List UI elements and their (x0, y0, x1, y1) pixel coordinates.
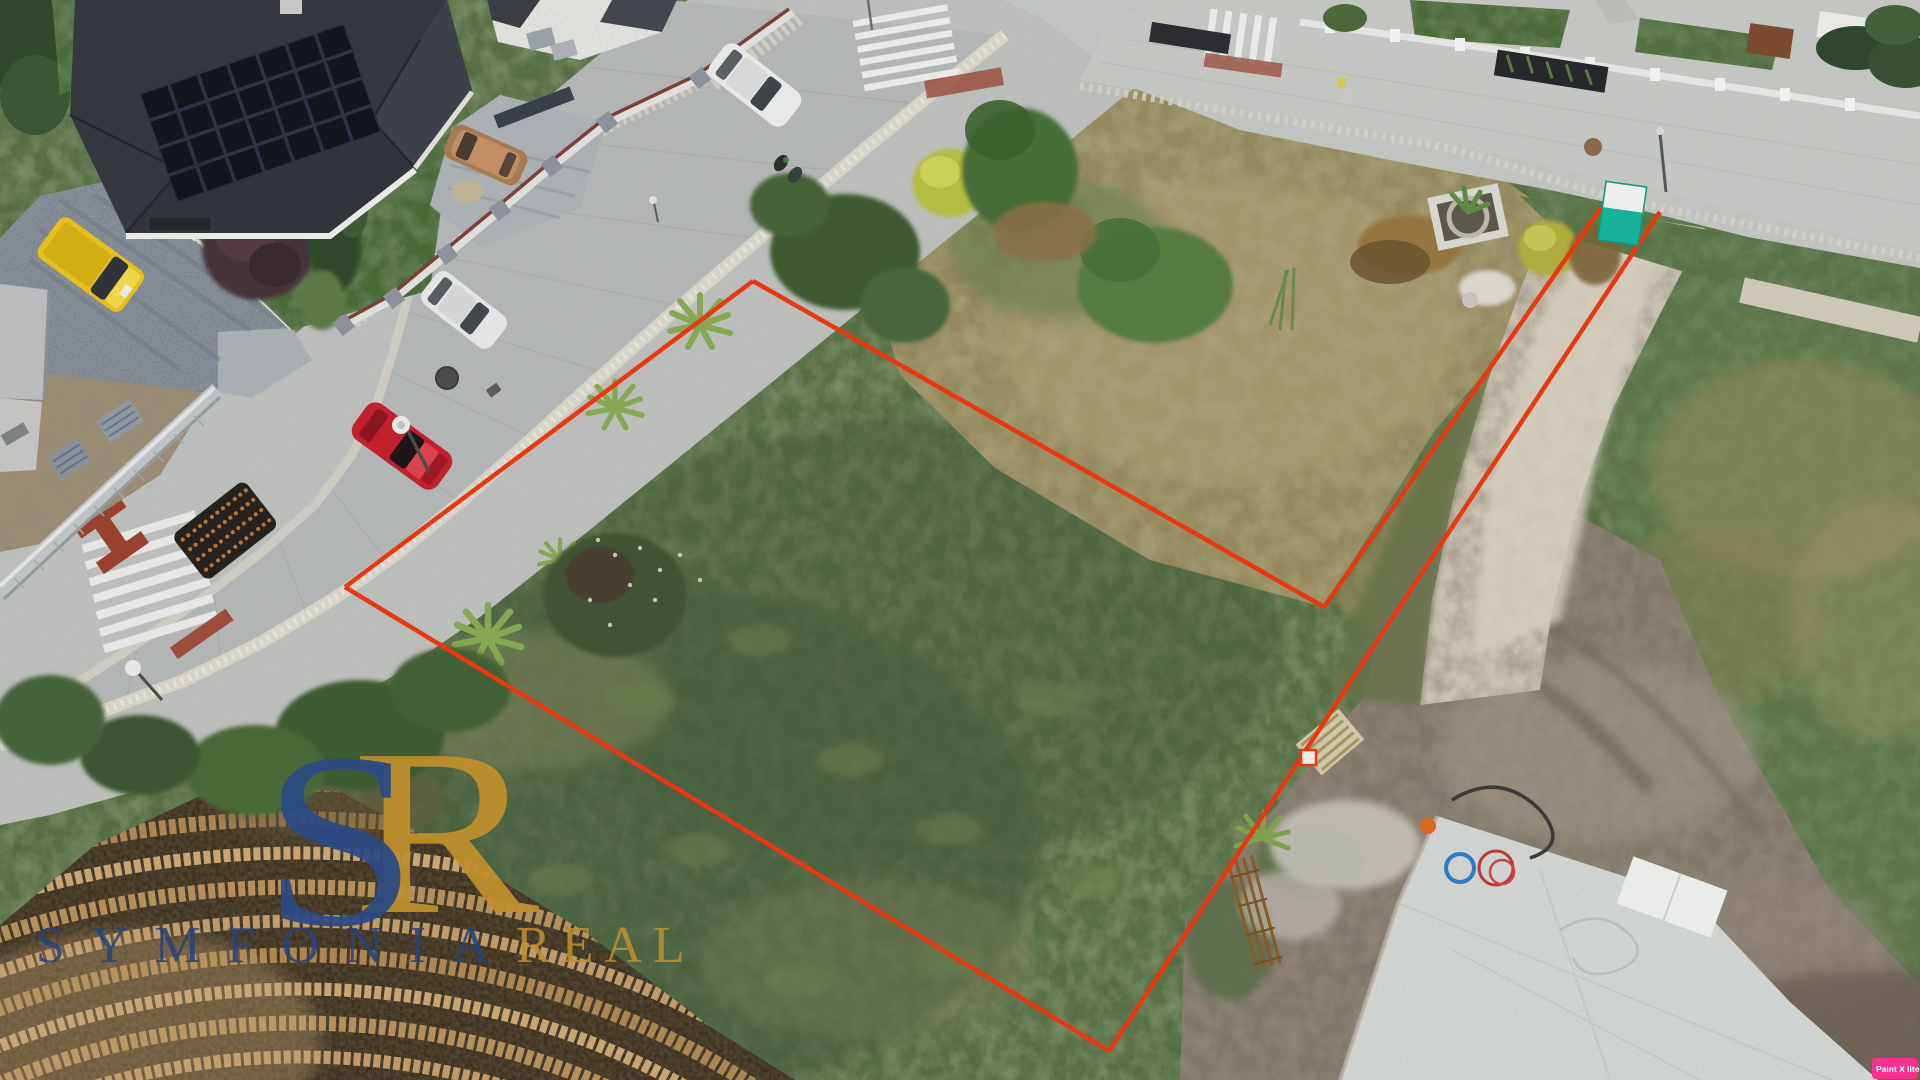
svg-text:Paint X lite: Paint X lite (1876, 1064, 1920, 1074)
svg-text:REAL: REAL (516, 917, 696, 974)
svg-text:SYMFONIA: SYMFONIA (36, 917, 516, 974)
